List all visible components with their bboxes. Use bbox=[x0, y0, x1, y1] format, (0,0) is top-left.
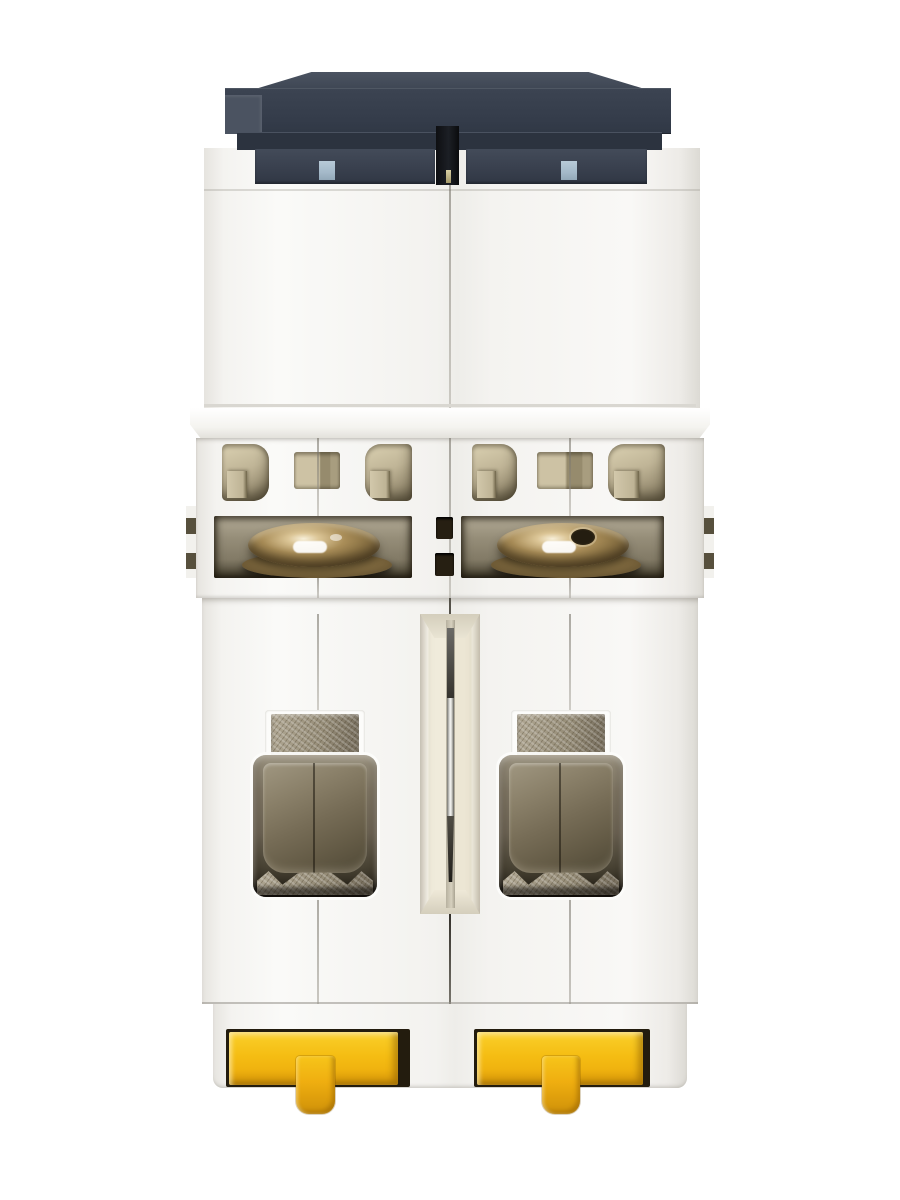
pole-seam-vent-right-lower bbox=[569, 578, 571, 598]
flange-notch bbox=[703, 553, 714, 569]
coil-highlight bbox=[542, 541, 576, 553]
terminal-clamp bbox=[509, 763, 613, 873]
busbar-tab-housing-right bbox=[511, 710, 611, 760]
terminal-shadow bbox=[499, 887, 623, 897]
brass-coil bbox=[248, 523, 380, 567]
vent-band-gap-line bbox=[204, 404, 696, 407]
vent-inner-wall bbox=[477, 471, 497, 498]
center-pole-seam-upper bbox=[449, 185, 451, 410]
housing-top-edge-line bbox=[204, 189, 700, 191]
pole-seam-vent-left-lower bbox=[317, 578, 319, 598]
window-tab-right bbox=[561, 161, 577, 180]
busbar-tab-metal bbox=[271, 714, 359, 758]
rivet-hole-upper bbox=[436, 517, 453, 539]
terminal-opening-left bbox=[253, 755, 377, 897]
front-cover-left-step bbox=[225, 95, 262, 134]
vent-band-rim bbox=[190, 408, 710, 438]
coil-highlight bbox=[293, 541, 327, 553]
vent-window bbox=[222, 444, 269, 501]
vent-inner-wall bbox=[227, 471, 248, 498]
vent-inner-wall bbox=[370, 471, 391, 498]
vent-window bbox=[365, 444, 412, 501]
photo-canvas bbox=[0, 0, 900, 1200]
channel-pin-steel bbox=[447, 698, 454, 816]
clamp-seam bbox=[559, 763, 561, 873]
divider-pin-glint bbox=[446, 170, 451, 183]
coil-wire-hole bbox=[571, 529, 595, 545]
coil-opening-right bbox=[461, 516, 664, 578]
busbar-tab-housing-left bbox=[265, 710, 365, 760]
pole-seam-lower-right bbox=[569, 614, 571, 712]
clamp-seam bbox=[313, 763, 315, 873]
terminal-shadow bbox=[253, 887, 377, 897]
coil-opening-left bbox=[214, 516, 412, 578]
channel-pin-top bbox=[447, 628, 454, 698]
front-cover-lower-band-right bbox=[466, 149, 647, 184]
brass-coil bbox=[497, 523, 629, 567]
pole-divider-slot bbox=[436, 126, 459, 185]
vent-window bbox=[472, 444, 517, 501]
vent-window bbox=[608, 444, 665, 501]
front-cover-lower-band-left bbox=[255, 149, 435, 184]
din-clip-pull-tab-left bbox=[296, 1056, 335, 1114]
coil-highlight-small bbox=[330, 534, 342, 541]
pole-seam-lower-left bbox=[317, 614, 319, 712]
upper-housing bbox=[204, 148, 700, 410]
vent-inner-wall bbox=[614, 471, 639, 498]
din-clip-pull-tab-right bbox=[542, 1056, 580, 1114]
center-channel bbox=[420, 614, 480, 914]
busbar-tab-metal bbox=[517, 714, 605, 758]
circuit-breaker-photo bbox=[0, 0, 900, 1200]
pole-seam-vent-right bbox=[569, 438, 571, 516]
pole-seam-vent-left bbox=[317, 438, 319, 516]
terminal-opening-right bbox=[499, 755, 623, 897]
vent-window-small bbox=[537, 452, 593, 489]
rivet-hole-lower bbox=[435, 553, 454, 576]
center-seam-above-channel bbox=[449, 598, 451, 614]
window-tab-left bbox=[319, 161, 335, 180]
flange-notch bbox=[703, 518, 714, 534]
terminal-clamp bbox=[263, 763, 367, 873]
